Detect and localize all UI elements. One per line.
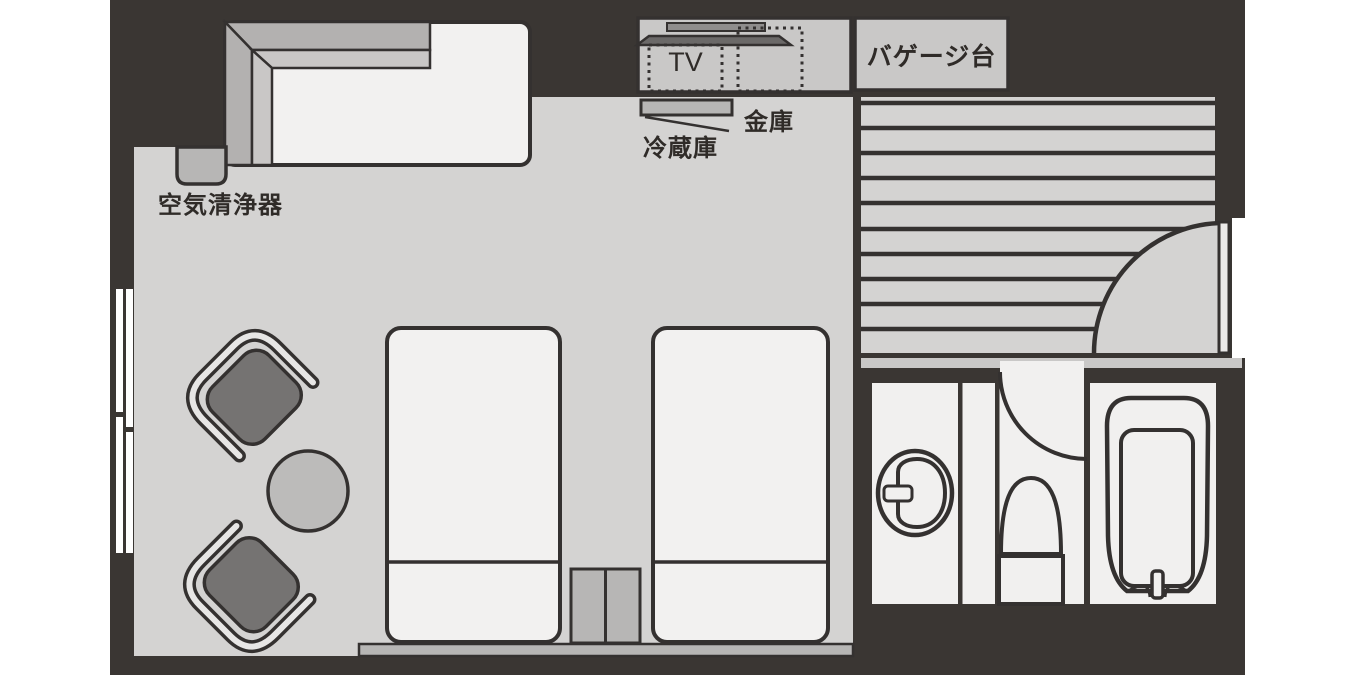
entry-door-opening: [1232, 218, 1245, 358]
entrance-hall: [861, 97, 1245, 368]
baggage-stand-label: バゲージ台: [855, 45, 1008, 70]
bed-left: [387, 328, 560, 642]
tv-stand-bar: [667, 23, 765, 31]
sofa-back-inner-left: [252, 50, 272, 165]
toilet-tank: [999, 556, 1063, 604]
sofa-back-outer-top: [225, 22, 430, 50]
air-purifier: [177, 147, 226, 184]
toilet-bowl: [1001, 478, 1061, 554]
air-purifier-label: 空気清浄器: [158, 194, 283, 218]
refrigerator-box: [641, 100, 732, 115]
bed-right: [653, 328, 828, 642]
safe-label: 金庫: [744, 111, 794, 135]
tv-label: TV: [649, 49, 722, 76]
tv-screen: [637, 36, 791, 45]
corner-desk-sofa: [225, 22, 530, 165]
bathtub: [1107, 398, 1208, 598]
nightstand: [571, 569, 640, 643]
partition-sink-left: [958, 383, 963, 604]
bathroom: [872, 361, 1216, 604]
toilet-doorway: [1000, 361, 1084, 385]
partition-toilet-bath: [1084, 383, 1090, 604]
floor-plan: TV 金庫 冷蔵庫 バゲージ台 空気清浄器: [0, 0, 1350, 675]
refrigerator-label: 冷蔵庫: [643, 137, 718, 161]
washbasin-faucet: [884, 486, 912, 501]
sofa-back-inner-top: [252, 50, 430, 68]
bathtub-faucet: [1152, 571, 1163, 598]
headboard-bar: [359, 644, 853, 656]
floor-plan-drawing: [0, 0, 1350, 675]
entry-door-leaf: [1219, 222, 1229, 353]
round-table: [268, 451, 348, 531]
